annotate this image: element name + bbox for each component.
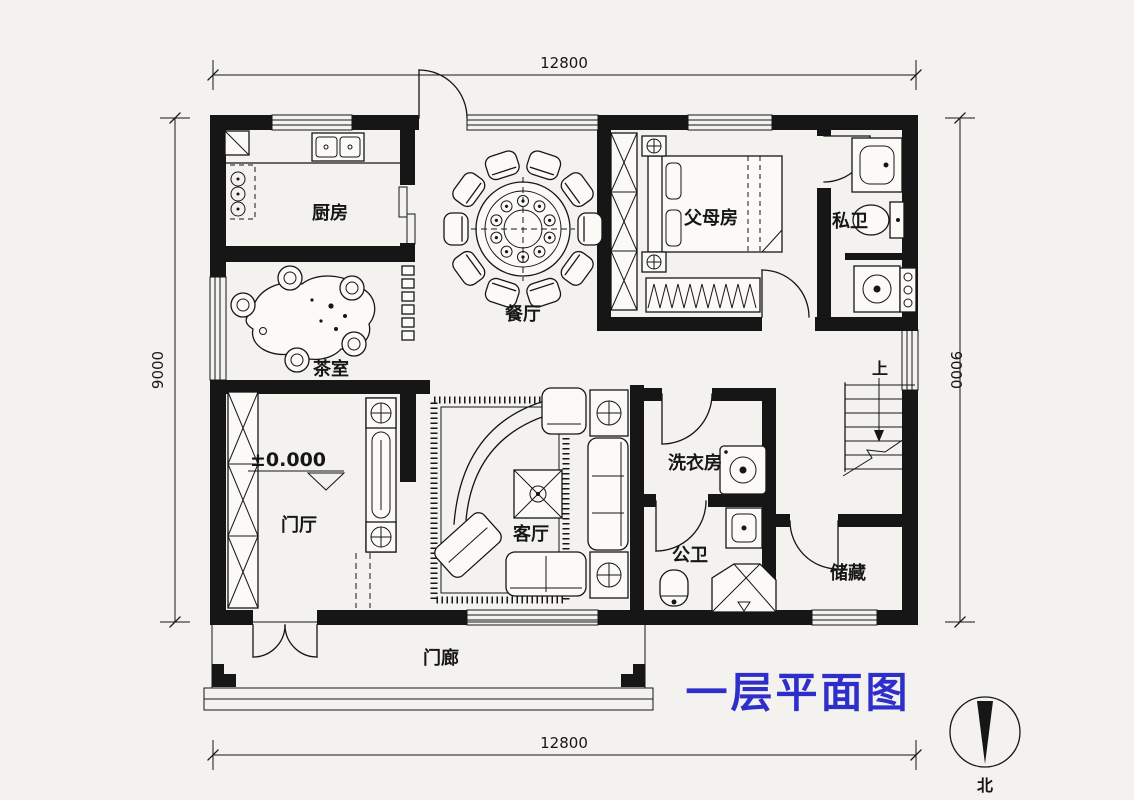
side-table-top [590, 390, 628, 436]
room-label-tea: 茶室 [313, 358, 349, 380]
main-entry-double-door [253, 625, 317, 657]
double-bed [648, 156, 782, 252]
kitchen-window [272, 115, 352, 130]
stove [221, 165, 255, 219]
stair-window [902, 330, 918, 390]
armchair [542, 388, 586, 434]
north-compass: 北 [950, 697, 1020, 795]
floor-plan-drawing: 上 [0, 0, 1134, 800]
ensuite-vanity [852, 138, 902, 192]
kitchen-sliding-door [399, 187, 415, 244]
kitchen-sink [312, 133, 364, 161]
tea-side-cabinet [402, 266, 414, 340]
tea-room-furniture [231, 266, 414, 372]
living-window [467, 610, 598, 625]
room-label-laundry: 洗衣房 [668, 452, 722, 474]
elevation-value: ±0.000 [250, 449, 326, 471]
room-label-dining: 餐厅 [504, 303, 541, 325]
dimension-bottom: 12800 [208, 734, 921, 770]
porch-step-left [212, 664, 236, 687]
parents-room-door [762, 270, 809, 317]
bottom-sofa [506, 552, 586, 596]
right-sofa [588, 438, 628, 550]
wardrobe-x-cabinet [611, 133, 637, 310]
compass-needle-icon [977, 701, 993, 764]
dining-furniture [444, 149, 602, 309]
hanging-closet [646, 278, 760, 312]
bath-toilet [660, 570, 688, 606]
dimension-top-value: 12800 [540, 54, 588, 72]
dimension-right: 9000 [945, 113, 975, 627]
stairs-up-label: 上 [872, 359, 888, 378]
coffee-table [514, 470, 562, 518]
top-entry-door [419, 70, 467, 118]
dimension-left: 9000 [149, 113, 190, 627]
dimension-bottom-value: 12800 [540, 734, 588, 752]
bath-sink [726, 508, 762, 548]
parents-window [688, 115, 772, 130]
room-label-storage: 储藏 [829, 562, 866, 584]
laundry-furniture [720, 446, 766, 494]
tea-room-window [210, 277, 226, 380]
foyer-closet [228, 392, 258, 608]
laundry-door [662, 394, 712, 444]
room-label-porch: 门廊 [423, 647, 459, 669]
drawing-title: 一层平面图 [685, 668, 910, 717]
chaise [432, 509, 505, 580]
side-table-bottom [590, 552, 628, 598]
bath-shower [712, 564, 776, 612]
room-label-parents: 父母房 [684, 207, 738, 229]
north-label: 北 [977, 776, 993, 795]
dimension-left-value: 9000 [149, 351, 167, 389]
room-label-living: 客厅 [513, 523, 549, 545]
dimension-top: 12800 [208, 54, 921, 90]
room-label-ensuite: 私卫 [832, 211, 868, 232]
storage-door [790, 521, 838, 569]
kitchen-furniture [221, 131, 400, 219]
floor-plan-page: 上 [0, 0, 1134, 800]
foyer-console [366, 398, 396, 552]
room-label-kitchen: 厨房 [312, 202, 348, 224]
dining-window [467, 115, 598, 130]
bath-door [656, 501, 706, 551]
foyer-furniture: ±0.000 [228, 392, 396, 608]
dimension-right-value: 9000 [947, 351, 965, 389]
fridge [225, 131, 249, 155]
room-label-bath: 公卫 [672, 545, 708, 566]
elevation-marker: ±0.000 [248, 449, 344, 490]
ensuite-washer [854, 266, 916, 312]
room-label-foyer: 门厅 [281, 514, 317, 536]
storage-window [812, 610, 877, 625]
living-room-furniture [432, 388, 628, 600]
porch-step-right [621, 664, 645, 687]
